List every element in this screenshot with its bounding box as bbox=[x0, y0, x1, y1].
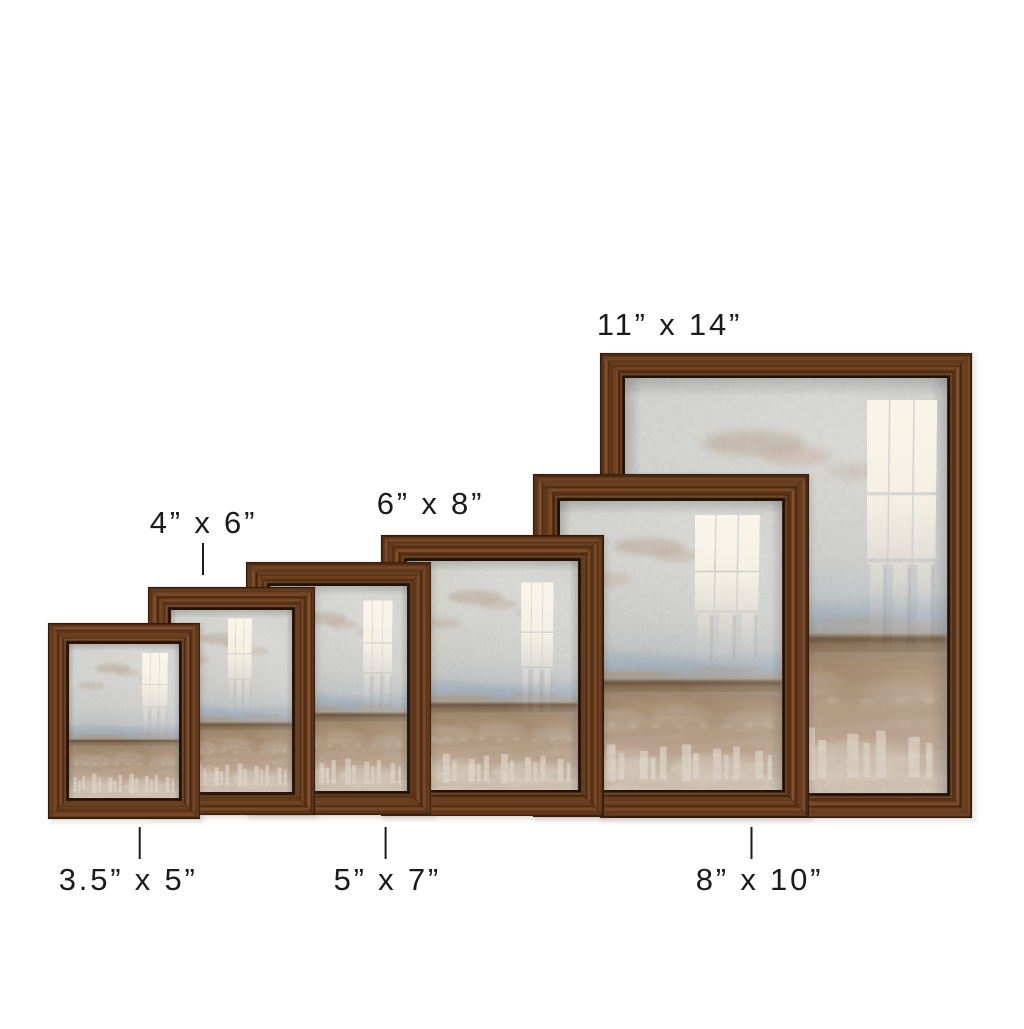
svg-text:8” x 10”: 8” x 10” bbox=[696, 862, 824, 897]
svg-text:3.5” x 5”: 3.5” x 5” bbox=[59, 862, 198, 897]
svg-text:6” x 8”: 6” x 8” bbox=[377, 486, 484, 521]
svg-text:5” x 7”: 5” x 7” bbox=[334, 862, 441, 897]
svg-text:4” x 6”: 4” x 6” bbox=[150, 505, 257, 540]
svg-text:11” x 14”: 11” x 14” bbox=[597, 307, 742, 342]
